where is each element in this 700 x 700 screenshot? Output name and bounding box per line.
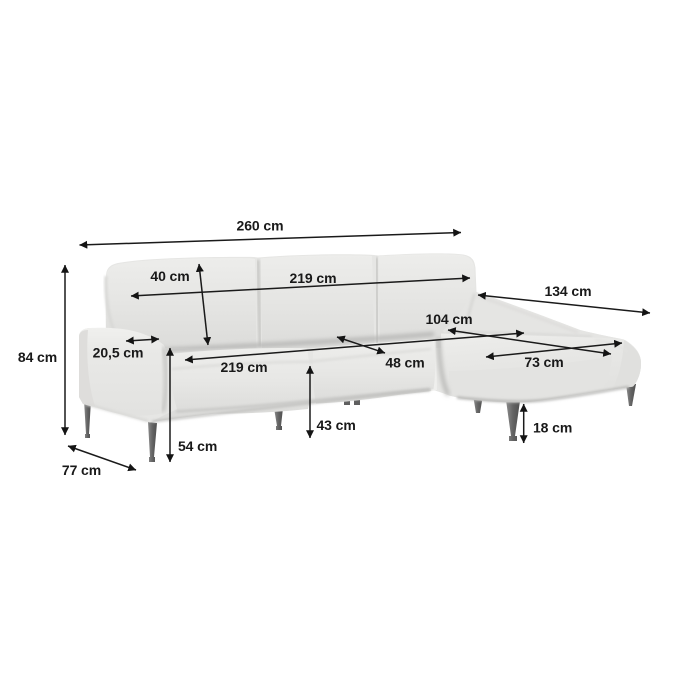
svg-text:18 cm: 18 cm: [533, 420, 572, 436]
svg-text:260 cm: 260 cm: [237, 218, 284, 234]
svg-text:219 cm: 219 cm: [290, 270, 337, 286]
svg-text:134 cm: 134 cm: [545, 283, 592, 299]
svg-text:104 cm: 104 cm: [426, 311, 473, 327]
svg-text:20,5 cm: 20,5 cm: [93, 345, 144, 361]
svg-text:43 cm: 43 cm: [317, 417, 356, 433]
svg-text:48 cm: 48 cm: [385, 355, 424, 371]
svg-text:219 cm: 219 cm: [221, 359, 268, 375]
svg-text:54 cm: 54 cm: [178, 438, 217, 454]
svg-text:40 cm: 40 cm: [150, 268, 189, 284]
svg-text:84 cm: 84 cm: [18, 349, 57, 365]
svg-text:73 cm: 73 cm: [524, 354, 563, 370]
svg-text:77 cm: 77 cm: [62, 462, 101, 478]
